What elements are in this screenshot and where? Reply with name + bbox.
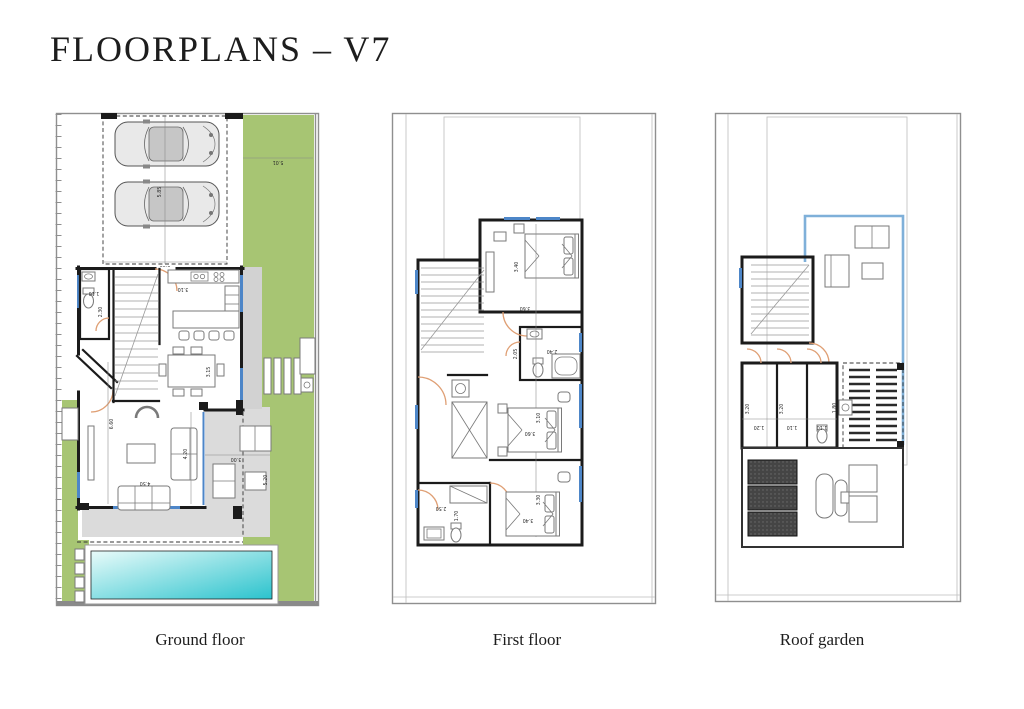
outdoor-table-icon: [849, 496, 877, 522]
dimension-label: 4.20: [183, 449, 189, 460]
dimension-label: 3.15: [206, 367, 212, 378]
dimension-label: 5.85: [157, 187, 163, 198]
ground-floor-label: Ground floor: [100, 630, 300, 650]
roof-garden-label: Roof garden: [722, 630, 922, 650]
dimension-label: 3.20: [745, 404, 751, 415]
dimension-label: 3.30: [536, 495, 542, 506]
dimension-label: 1.10: [817, 424, 828, 430]
stool-icon: [179, 331, 189, 340]
ground-floor-plan: 5.85 5.60 5.01: [55, 112, 320, 610]
column: [77, 503, 89, 510]
tv-icon: [494, 232, 506, 241]
roof-terrace: [805, 216, 903, 445]
dimension-label: 1.10: [787, 424, 798, 430]
dimension-label: 3.00: [231, 456, 242, 462]
chair-icon: [558, 392, 570, 402]
floorplan-sheet: FLOORPLANS – V7: [0, 0, 1024, 709]
roof-garden-plan: 3.20 3.20 1.20 1.10 1.10 1.80: [713, 112, 965, 608]
column: [897, 441, 904, 448]
sink-icon: [839, 400, 852, 415]
page-title: FLOORPLANS – V7: [50, 28, 391, 70]
dimension-label: 2.05: [513, 349, 519, 360]
stool-icon: [224, 331, 234, 340]
first-floor-plan: 3.40 3.60 2.05 2.40 3.1: [390, 112, 658, 610]
dimension-label: 3.10: [178, 286, 189, 292]
solar-panel-icon: [748, 512, 797, 536]
entry-path: [62, 408, 78, 440]
gate-post: [101, 113, 117, 119]
fridge-icon: [225, 286, 239, 314]
outdoor-table-icon: [245, 472, 266, 490]
dimension-label: 2.40: [547, 348, 558, 354]
nightstand-icon: [498, 404, 507, 413]
toilet-icon: [451, 528, 461, 542]
bathtub-icon: [552, 354, 580, 378]
column: [897, 363, 904, 370]
dimension-label: 2.50: [436, 505, 447, 511]
side-table-icon: [862, 263, 883, 279]
dimension-label: 3.60: [525, 430, 536, 436]
sink-icon: [527, 329, 542, 339]
chair-icon: [558, 472, 570, 482]
dimension-label: 1.70: [454, 511, 460, 522]
column: [236, 400, 243, 415]
gate-post: [225, 113, 243, 119]
first-floor-label: First floor: [427, 630, 627, 650]
lounge-chair-icon: [816, 474, 833, 518]
dimension-label: 5.20: [263, 475, 269, 486]
nightstand-icon: [498, 447, 507, 456]
dimension-label: 3.10: [536, 413, 542, 424]
column: [233, 506, 242, 519]
dimension-label: 6.60: [109, 419, 115, 430]
dimension-label: 3.20: [779, 404, 785, 415]
dimension-label: 2.30: [98, 307, 104, 318]
nightstand-icon: [514, 224, 524, 233]
solar-panel-icon: [748, 460, 797, 484]
washing-machine-icon: [452, 380, 469, 397]
outdoor-table-icon: [849, 465, 877, 492]
tv-unit-icon: [88, 426, 94, 480]
pool-water: [91, 551, 272, 599]
stool-icon: [209, 331, 219, 340]
toilet-icon: [817, 429, 827, 443]
dimension-label: 3.60: [520, 305, 531, 311]
lower-terrace: [742, 448, 903, 547]
dimension-label: 5.01: [273, 159, 284, 165]
solar-panel-icon: [748, 486, 797, 510]
armchair-icon: [825, 255, 849, 287]
dimension-label: 3.40: [523, 517, 534, 523]
outdoor-sofa-icon: [240, 426, 271, 451]
dimension-label: 1.20: [754, 424, 765, 430]
swimming-pool: [75, 545, 278, 604]
dimension-label: 1.10: [89, 290, 100, 296]
stool-icon: [194, 331, 204, 340]
column: [199, 402, 208, 410]
bbq-icon: [301, 378, 313, 392]
toilet-icon: [533, 363, 543, 377]
dimension-label: 4.50: [140, 480, 151, 486]
outdoor-kitchen-icon: [300, 338, 315, 374]
kitchen-island: [173, 311, 239, 328]
dimension-label: 1.80: [832, 403, 838, 414]
coffee-table-icon: [127, 444, 155, 463]
wardrobe-icon: [486, 252, 494, 292]
dimension-label: 3.40: [514, 262, 520, 273]
sofa-icon: [118, 486, 170, 510]
